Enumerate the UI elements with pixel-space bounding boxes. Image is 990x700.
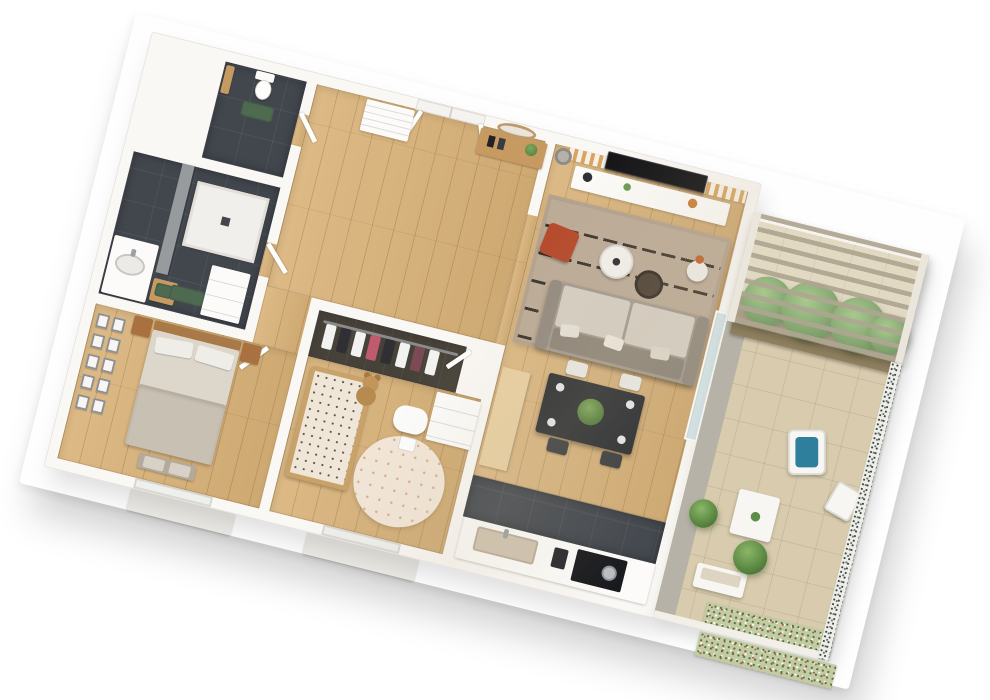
room-wc — [202, 62, 307, 178]
blue-cushion — [795, 437, 818, 467]
floor-plan — [45, 33, 946, 664]
apartment-shell — [45, 33, 761, 618]
scene-canvas — [0, 0, 990, 700]
hall-corridor — [253, 286, 312, 353]
sofa-pillow — [560, 324, 580, 338]
